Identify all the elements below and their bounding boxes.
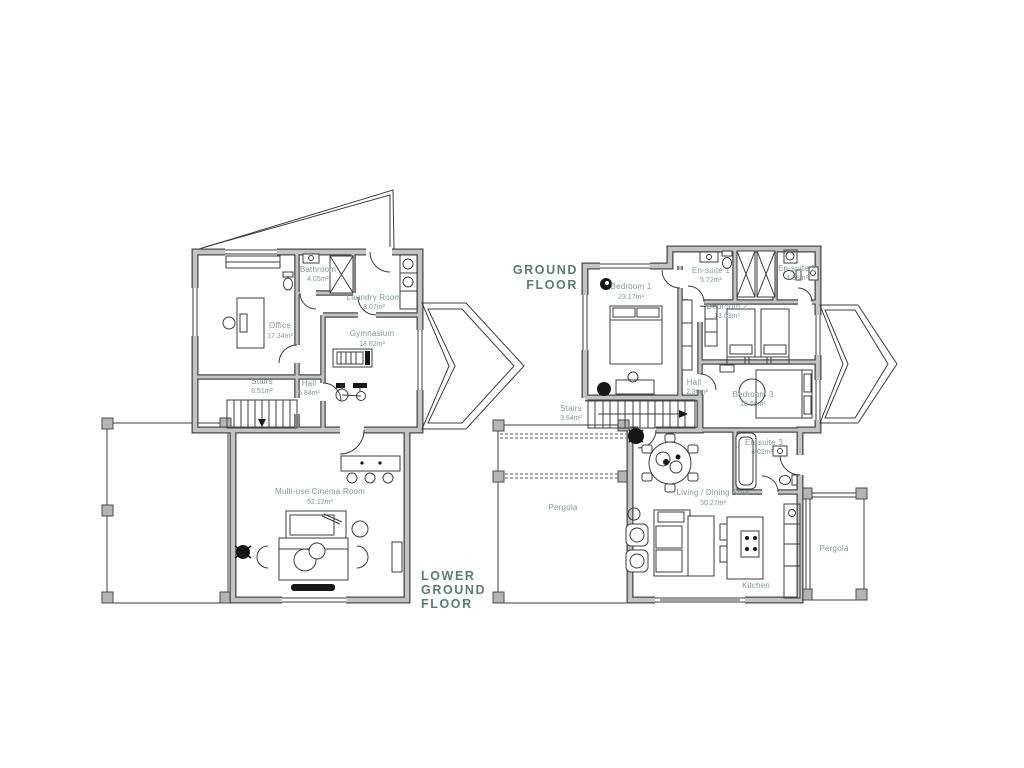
ground-floor-plan: Bedroom 1 23.17m² En-suite 1 5.72m² En-s…	[493, 249, 897, 605]
floor-title-lower-2: GROUND	[421, 583, 486, 597]
room-area-bathroom: 4.05m²	[307, 276, 329, 283]
room-area-ensuite2: 4.68m²	[786, 275, 808, 282]
room-label-office: Office	[269, 321, 291, 330]
room-area-ensuite3: 4.02m²	[751, 449, 773, 456]
terrace-outline	[102, 418, 231, 603]
stairs-icon	[588, 400, 695, 428]
room-area-ensuite1: 5.72m²	[700, 277, 722, 284]
room-label-ensuite2: En-suite 2	[778, 264, 816, 273]
room-label-kitchen: Kitchen	[742, 581, 770, 590]
room-label-gymnasium: Gymnasium	[350, 329, 395, 338]
room-area-laundry: 8.07m²	[363, 304, 385, 311]
room-label-laundry: Laundry Room	[347, 293, 402, 302]
shower-icon	[330, 256, 353, 293]
desk-icon	[223, 298, 264, 348]
room-area-living: 50.27m²	[700, 500, 726, 507]
room-label-hall-lg: Hall	[302, 379, 317, 388]
bar-counter-icon	[341, 456, 400, 483]
sofa-icon	[279, 538, 348, 580]
room-label-ensuite1: En-suite 1	[692, 266, 730, 275]
soundbar-icon	[291, 584, 335, 591]
washer-dryer-icon	[400, 255, 417, 309]
room-area-office: 17.34m²	[267, 333, 293, 340]
room-label-ensuite3: En-suite 3	[745, 438, 783, 447]
floor-title-lower-3: FLOOR	[421, 597, 473, 611]
floor-title-ground-2: FLOOR	[526, 278, 578, 292]
side-table-icon	[352, 521, 368, 537]
room-area-gymnasium: 18.62m²	[359, 341, 385, 348]
room-area-bedroom2: 13.63m²	[714, 313, 740, 320]
room-label-bedroom1: Bedroom 1	[611, 282, 652, 291]
desk-icon	[616, 372, 654, 394]
sink-icon	[303, 254, 319, 263]
bed-icon	[610, 306, 662, 364]
room-label-bathroom: Bathroom	[300, 265, 336, 274]
floor-plan-page: Bathroom 4.05m² Laundry Room 8.07m² Offi…	[0, 0, 1024, 768]
room-area-hall-lg: 5.84m²	[298, 390, 320, 397]
armchair-icon	[626, 508, 648, 572]
tv-console-icon	[286, 511, 346, 539]
wardrobe-icon	[682, 300, 692, 370]
kitchen-island-icon	[720, 517, 763, 579]
treadmill-icon	[333, 349, 372, 367]
closet-icon	[737, 251, 775, 297]
plant-icon	[235, 545, 251, 559]
furniture	[223, 254, 417, 591]
floor-title-lower-1: LOWER	[421, 569, 476, 583]
roof-outline-icon	[199, 190, 394, 249]
floor-title-ground-1: GROUND	[513, 263, 578, 277]
room-label-stairs-lg: Stairs	[251, 377, 273, 386]
room-label-stairs-gf: Stairs	[560, 404, 582, 413]
direction-arrow-icon	[820, 305, 897, 423]
direction-arrow-icon	[422, 303, 524, 429]
stairs-icon	[227, 400, 297, 428]
lower-ground-floor-plan: Bathroom 4.05m² Laundry Room 8.07m² Offi…	[102, 190, 524, 611]
room-area-bedroom3: 10.68m²	[740, 401, 766, 408]
room-area-stairs-lg: 8.51m²	[251, 388, 273, 395]
room-label-hall-gf: Hall	[687, 378, 702, 387]
room-area-cinema: 52.12m²	[307, 499, 333, 506]
room-label-bedroom2: Bedroom 2	[707, 302, 748, 311]
room-area-stairs-gf: 3.64m²	[560, 415, 582, 422]
room-label-cinema: Multi-use Cinema Room	[275, 487, 365, 496]
room-label-living: Living / Dining Area	[677, 488, 750, 497]
speaker-icon	[392, 542, 402, 572]
room-label-pergola-right: Pergola	[820, 544, 849, 553]
room-label-pergola-left: Pergola	[549, 503, 578, 512]
room-label-bedroom3: Bedroom 3	[733, 390, 774, 399]
room-area-hall-gf: 2.80m²	[686, 389, 708, 396]
sofa-icon	[654, 510, 714, 576]
room-area-bedroom1: 23.17m²	[618, 294, 644, 301]
toilet-icon	[283, 272, 293, 290]
floor-plan-canvas: Bathroom 4.05m² Laundry Room 8.07m² Offi…	[0, 0, 1024, 768]
